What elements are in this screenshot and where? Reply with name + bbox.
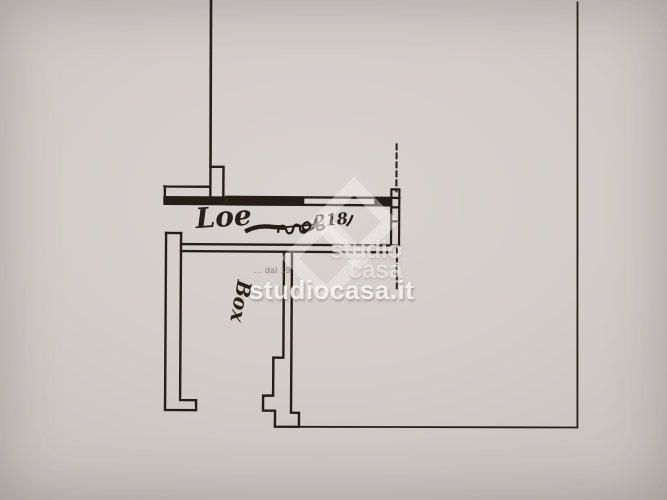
wall-box-top [166,233,399,252]
wall-loc-top-thick-right [374,198,391,206]
boundary-right [575,1,580,427]
wall-loc-left-cap [164,186,209,197]
boundary-bottom [299,426,577,429]
wall-pillar [210,167,223,197]
scribble-number: 218 [313,209,349,231]
wall-box-right [263,252,300,427]
floorplan-drawing: Loe 218 Box [0,0,667,500]
floorplan-photo: Loe 218 Box studio casa ... dal 19 studi… [0,0,667,500]
wall-box-left [165,233,197,410]
wall-top-boundary [210,0,212,167]
room-label-loc: Loe [193,199,252,236]
room-label-box: Box [225,278,257,326]
